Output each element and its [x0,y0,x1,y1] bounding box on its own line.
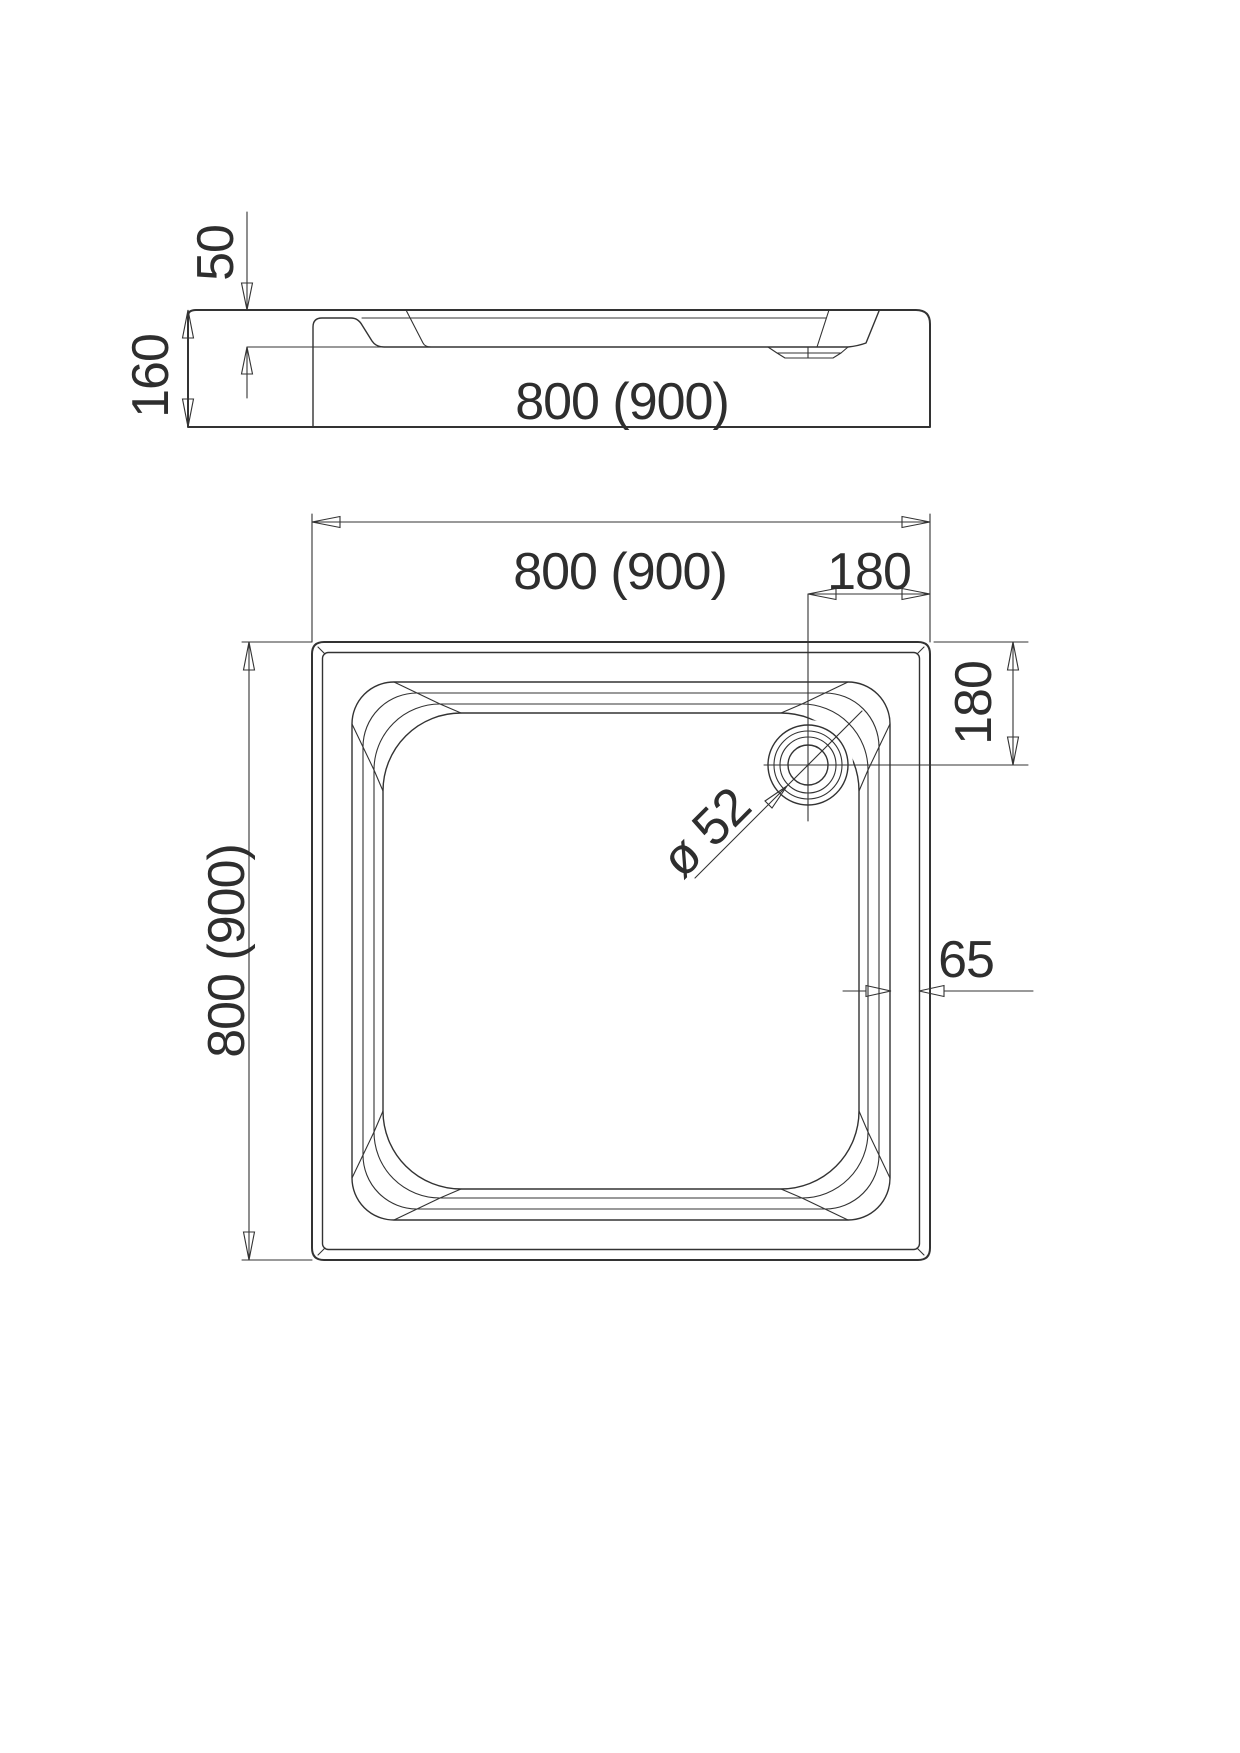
side-view: 160 50 800 (900) [122,212,930,431]
dimension-side-height: 160 [122,310,194,427]
dimension-plan-height: 800 (900) [198,642,312,1260]
side-width-label: 800 (900) [515,373,729,431]
wall-width-label: 65 [938,931,994,989]
dimension-side-depth: 50 [187,212,384,398]
dimension-drain-offset-y: 180 [934,642,1028,765]
plan-height-label: 800 (900) [198,844,256,1058]
dimension-drain-offset-x: 180 [808,543,930,601]
side-view-right-wall-edge [817,310,829,347]
drain-offset-y-label: 180 [945,661,1003,745]
technical-drawing: 160 50 800 (900) [0,0,1240,1753]
side-height-label: 160 [122,334,180,418]
side-view-drain-trap [768,347,848,358]
dimension-wall-width: 65 [843,931,1033,997]
plan-width-label: 800 (900) [513,543,727,601]
drain-offset-x-label: 180 [827,543,911,601]
plan-view: 800 (900) 180 180 800 (900) [198,514,1033,1260]
side-depth-label: 50 [187,225,245,281]
side-view-left-wall-edge [406,310,431,347]
drawing-page: 160 50 800 (900) [0,0,1240,1753]
drain-diameter-label: ø 52 [650,777,762,889]
